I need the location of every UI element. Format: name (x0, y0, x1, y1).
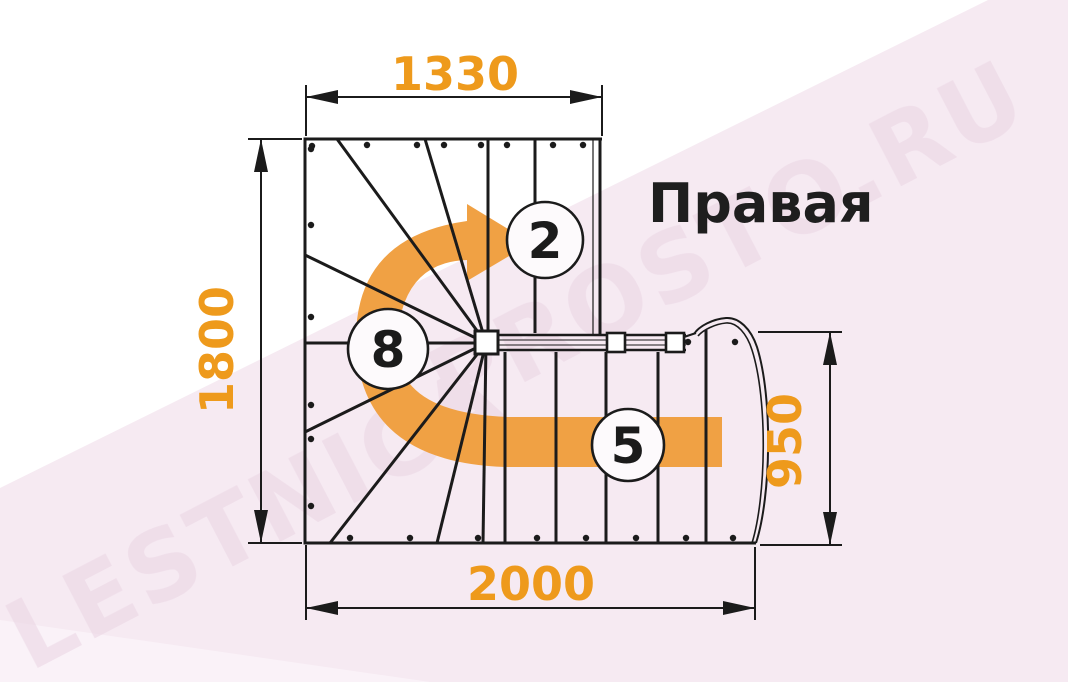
page-title: Правая (648, 172, 874, 235)
dimension-left-label: 1800 (190, 286, 244, 414)
step-count-winder: 8 (371, 321, 406, 379)
staircase-plan-drawing: LESTNICA PROSTO.RU (0, 0, 1068, 682)
dimension-top-label: 1330 (391, 47, 519, 101)
dimension-right-label: 950 (758, 393, 812, 489)
dimension-bottom-label: 2000 (467, 557, 595, 611)
newel-post-center (475, 331, 498, 354)
step-count-top-flight: 2 (528, 212, 563, 270)
staircase-plan-page: LESTNICA PROSTO.RU (0, 0, 1068, 682)
newel-post-mid (607, 333, 625, 352)
step-count-bottom-flight: 5 (611, 417, 646, 475)
newel-post-end (666, 333, 684, 352)
